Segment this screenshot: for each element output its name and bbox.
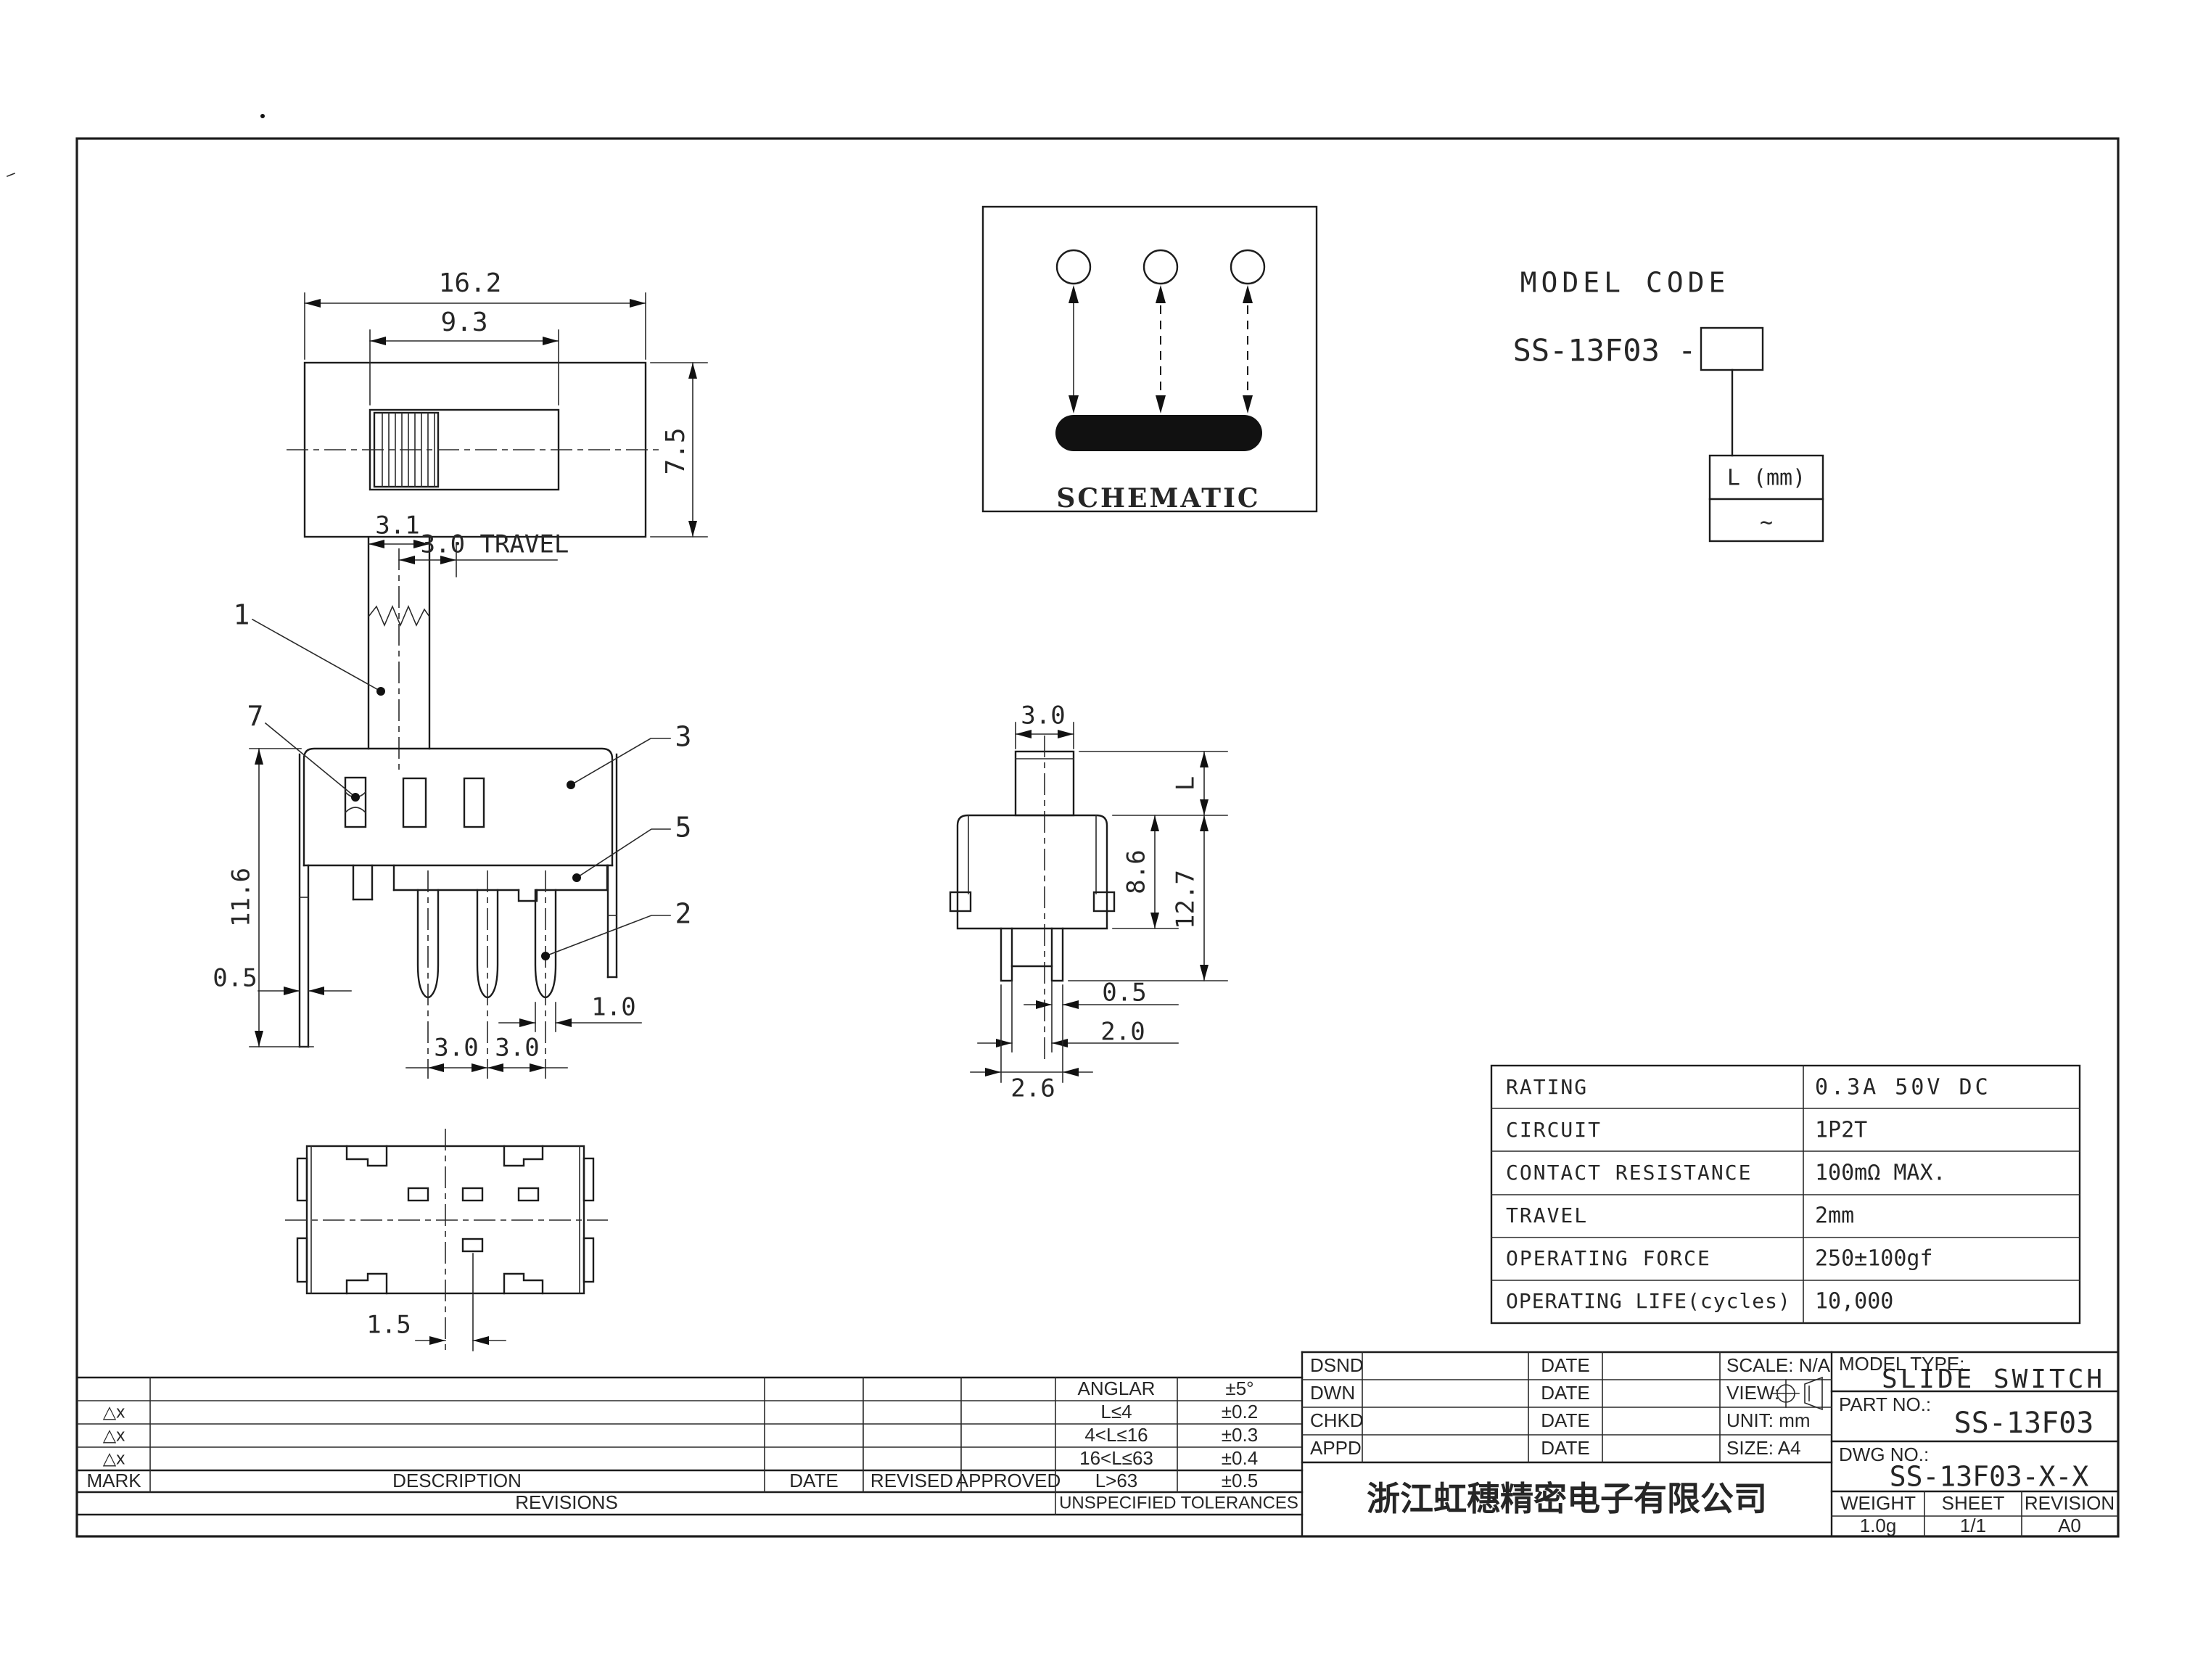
tol-value-2: ±0.3 — [1222, 1424, 1258, 1446]
dim-pitch-a: 3.0 — [434, 1034, 478, 1063]
dim-top-slot: 9.3 — [440, 308, 487, 337]
dim-side-body: 8.6 — [1122, 849, 1151, 894]
view-field: VIEW: — [1726, 1382, 1779, 1404]
engineering-drawing-canvas: 16.2 9.3 7.5 SCHEMATIC MODEL CODE SS-13F… — [0, 0, 2211, 1680]
revision-value: A0 — [2058, 1515, 2081, 1536]
dim-side-span: 2.6 — [1010, 1074, 1055, 1103]
pin-1 — [418, 890, 438, 997]
pin-3 — [535, 890, 556, 997]
schematic-view: SCHEMATIC — [983, 207, 1317, 514]
length-code-header: L (mm) — [1727, 466, 1806, 491]
stray-tick — [7, 173, 15, 176]
tol-range-1: L≤4 — [1100, 1401, 1132, 1422]
body-hole-3 — [464, 778, 484, 827]
sign-role-dwn: DWN — [1310, 1382, 1355, 1404]
sign-date-appd: DATE — [1541, 1437, 1589, 1459]
model-code-suffix-box — [1701, 328, 1763, 370]
sign-date-dwn: DATE — [1541, 1382, 1589, 1404]
unit-field: UNIT: mm — [1726, 1409, 1811, 1431]
tol-value-1: ±0.2 — [1222, 1401, 1258, 1422]
tol-value-anglar: ±5° — [1225, 1378, 1253, 1399]
spec-value-operating-life: 10,000 — [1815, 1289, 1893, 1314]
dim-side-pin-t: 0.5 — [1102, 979, 1146, 1008]
sheet-label: SHEET — [1942, 1492, 2005, 1514]
model-code-prefix: SS-13F03 - — [1513, 333, 1697, 368]
part-no-label: PART NO.: — [1839, 1393, 1931, 1415]
dim-plate-thickness: 0.5 — [213, 964, 257, 993]
spec-value-rating: 0.3A 50V DC — [1815, 1075, 1991, 1100]
dim-pin-width: 1.0 — [591, 993, 635, 1022]
weight-label: WEIGHT — [1840, 1492, 1916, 1514]
revisions-label: REVISIONS — [515, 1491, 618, 1513]
size-field: SIZE: A4 — [1726, 1437, 1801, 1459]
tol-header-description: DESCRIPTION — [392, 1470, 522, 1491]
tol-value-3: ±0.4 — [1222, 1447, 1258, 1469]
dim-side-pin-gap: 2.0 — [1100, 1018, 1145, 1047]
side-body — [958, 815, 1107, 928]
dim-top-height: 7.5 — [661, 427, 691, 474]
schematic-frame — [983, 207, 1317, 511]
sheet-value: 1/1 — [1960, 1515, 1986, 1536]
company-name: 浙江虹穗精密电子有限公司 — [1367, 1480, 1767, 1518]
dim-side-total: 12.7 — [1172, 870, 1201, 929]
third-angle-projection-icon — [1773, 1378, 1822, 1409]
callout-7: 7 — [247, 701, 264, 733]
weight-value: 1.0g — [1860, 1515, 1897, 1536]
sign-role-appd: APPD — [1310, 1437, 1362, 1459]
front-view: 3.1 3.0 TRAVEL 11.6 0.5 3.0 3.0 1.0 1 7 … — [213, 511, 691, 1079]
dim-knob-width: 3.1 — [375, 511, 419, 540]
scale-field: SCALE: N/A — [1726, 1354, 1831, 1376]
dim-pitch-b: 3.0 — [495, 1034, 539, 1063]
callout-2: 2 — [675, 898, 692, 930]
spec-label-circuit: CIRCUIT — [1506, 1118, 1602, 1142]
tol-range-4: L>63 — [1095, 1470, 1138, 1491]
model-type-value: SLIDE SWITCH — [1882, 1364, 2105, 1394]
detent-hole — [345, 778, 366, 827]
tol-header-date: DATE — [789, 1470, 838, 1491]
revision-label: REVISION — [2025, 1492, 2115, 1514]
spec-table: RATING 0.3A 50V DC CIRCUIT 1P2T CONTACT … — [1491, 1066, 2080, 1323]
model-code-heading: MODEL CODE — [1520, 267, 1730, 299]
tol-range-3: 16<L≤63 — [1079, 1447, 1153, 1469]
front-body — [304, 749, 612, 865]
sign-date-chkd: DATE — [1541, 1409, 1589, 1431]
side-tab-right — [1094, 892, 1114, 911]
callout-1: 1 — [234, 599, 250, 631]
tol-mark-3: △x — [103, 1449, 125, 1468]
spec-label-operating-life: OPERATING LIFE(cycles) — [1506, 1289, 1791, 1313]
spec-value-contact-resistance: 100mΩ MAX. — [1815, 1161, 1946, 1186]
length-code-value: ~ — [1760, 511, 1773, 536]
spec-label-contact-resistance: CONTACT RESISTANCE — [1506, 1161, 1752, 1185]
tol-range-2: 4<L≤16 — [1084, 1424, 1148, 1446]
body-hole-2 — [403, 778, 426, 827]
schematic-pole-1 — [1057, 250, 1090, 284]
dim-side-l: L — [1172, 776, 1201, 791]
schematic-pole-2 — [1144, 250, 1177, 284]
sign-date-dsnd: DATE — [1541, 1354, 1589, 1376]
schematic-slider-bar — [1055, 415, 1262, 451]
sign-role-chkd: CHKD — [1310, 1409, 1364, 1431]
unspecified-tolerances-label: UNSPECIFIED TOLERANCES — [1059, 1493, 1298, 1512]
spec-label-travel: TRAVEL — [1506, 1203, 1588, 1227]
tol-range-anglar: ANGLAR — [1078, 1378, 1156, 1399]
tol-header-mark: MARK — [86, 1470, 141, 1491]
title-block: DSND DATE DWN DATE CHKD DATE APPD DATE S… — [1302, 1352, 2118, 1536]
dim-travel: 3.0 TRAVEL — [421, 530, 569, 559]
callout-5: 5 — [675, 812, 692, 844]
stray-dot — [260, 114, 265, 118]
dim-side-knob: 3.0 — [1021, 701, 1065, 730]
dim-bottom-offset: 1.5 — [366, 1311, 411, 1340]
schematic-title: SCHEMATIC — [1056, 483, 1260, 514]
top-view: 16.2 9.3 7.5 — [287, 268, 707, 537]
spec-label-operating-force: OPERATING FORCE — [1506, 1246, 1711, 1270]
dim-top-width: 16.2 — [439, 268, 502, 298]
tol-header-approved: APPROVED — [956, 1470, 1061, 1491]
side-tab-left — [950, 892, 971, 911]
dim-height: 11.6 — [227, 868, 256, 927]
pin-2 — [477, 890, 498, 997]
tol-header-revised: REVISED — [870, 1470, 953, 1491]
schematic-pole-3 — [1231, 250, 1264, 284]
tol-value-4: ±0.5 — [1222, 1470, 1258, 1491]
callout-3: 3 — [675, 721, 692, 753]
tolerance-table: ANGLAR ±5° △x L≤4 ±0.2 △x 4<L≤16 ±0.3 △x… — [78, 1378, 1302, 1515]
spec-value-circuit: 1P2T — [1815, 1118, 1867, 1143]
dwg-no-value: SS-13F03-X-X — [1890, 1461, 2089, 1493]
tol-mark-2: △x — [103, 1425, 125, 1445]
model-code-block: MODEL CODE SS-13F03 - L (mm) ~ — [1513, 267, 1823, 542]
bottom-view: 1.5 — [285, 1129, 608, 1353]
side-view: 3.0 L 8.6 12.7 0.5 2.0 2.6 — [950, 701, 1227, 1103]
part-no-value: SS-13F03 — [1954, 1407, 2094, 1440]
spec-label-rating: RATING — [1506, 1075, 1588, 1099]
spec-value-operating-force: 250±100gf — [1815, 1246, 1933, 1272]
sign-role-dsnd: DSND — [1310, 1354, 1364, 1376]
stray-marks — [7, 114, 265, 176]
spec-value-travel: 2mm — [1815, 1203, 1854, 1229]
tol-mark-1: △x — [103, 1402, 125, 1422]
